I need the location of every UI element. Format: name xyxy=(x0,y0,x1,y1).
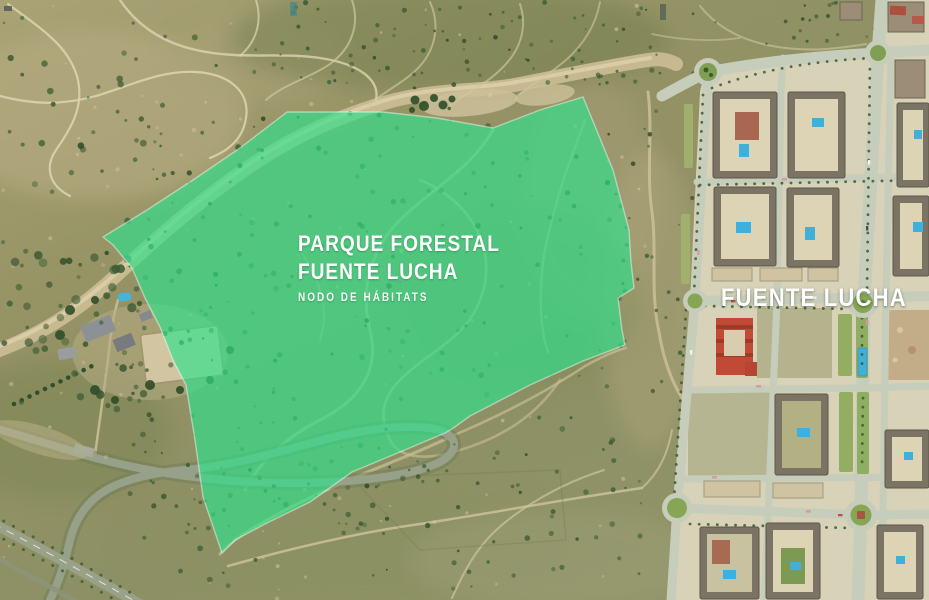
roundabout xyxy=(865,40,891,66)
city-block xyxy=(877,525,923,599)
satellite-map-view: PARQUE FORESTAL FUENTE LUCHA NODO DE HÁB… xyxy=(0,0,929,600)
roundabout xyxy=(683,289,707,313)
roundabout xyxy=(848,288,878,318)
urban-district xyxy=(662,0,929,600)
lap-pool xyxy=(858,348,867,376)
city-block xyxy=(893,196,929,276)
city-block xyxy=(788,92,845,178)
city-block xyxy=(775,394,828,475)
city-block xyxy=(787,188,839,267)
dirt-lot xyxy=(886,310,929,380)
vacant-lot xyxy=(757,308,832,378)
roundabout xyxy=(694,58,722,86)
map-canvas xyxy=(0,0,929,600)
vacant-lot xyxy=(688,392,770,476)
roundabout xyxy=(845,499,877,531)
city-block xyxy=(897,103,929,187)
city-block xyxy=(766,523,820,599)
city-block xyxy=(713,92,777,178)
city-block xyxy=(714,187,776,266)
roundabout xyxy=(662,493,692,523)
city-block xyxy=(885,430,929,488)
school-building xyxy=(716,318,757,376)
city-block xyxy=(700,527,759,599)
